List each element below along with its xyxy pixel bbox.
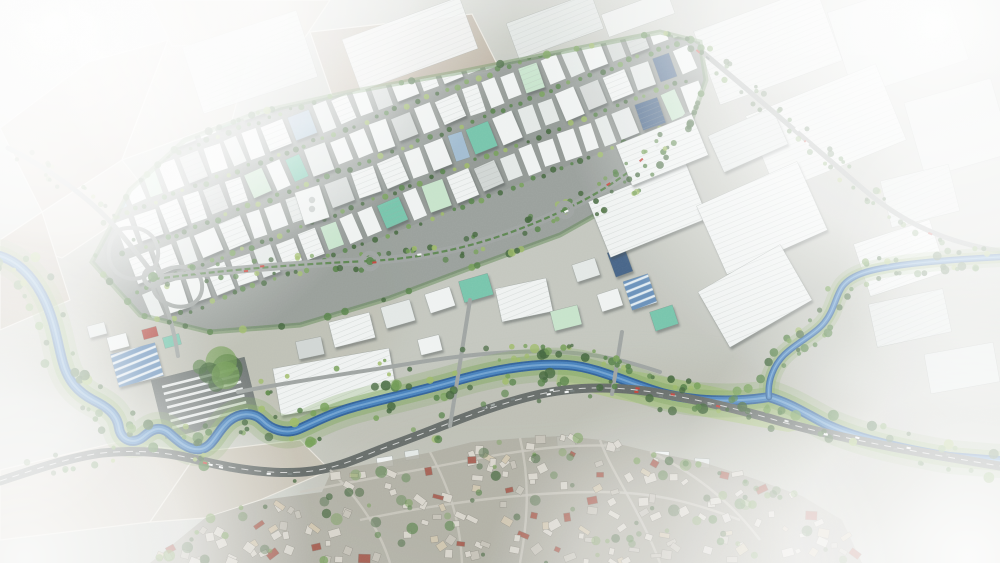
global-haze bbox=[0, 0, 1000, 563]
masterplan-aerial-image bbox=[0, 0, 1000, 563]
aerial-render bbox=[0, 0, 1000, 563]
fog-overlay bbox=[0, 0, 1000, 563]
